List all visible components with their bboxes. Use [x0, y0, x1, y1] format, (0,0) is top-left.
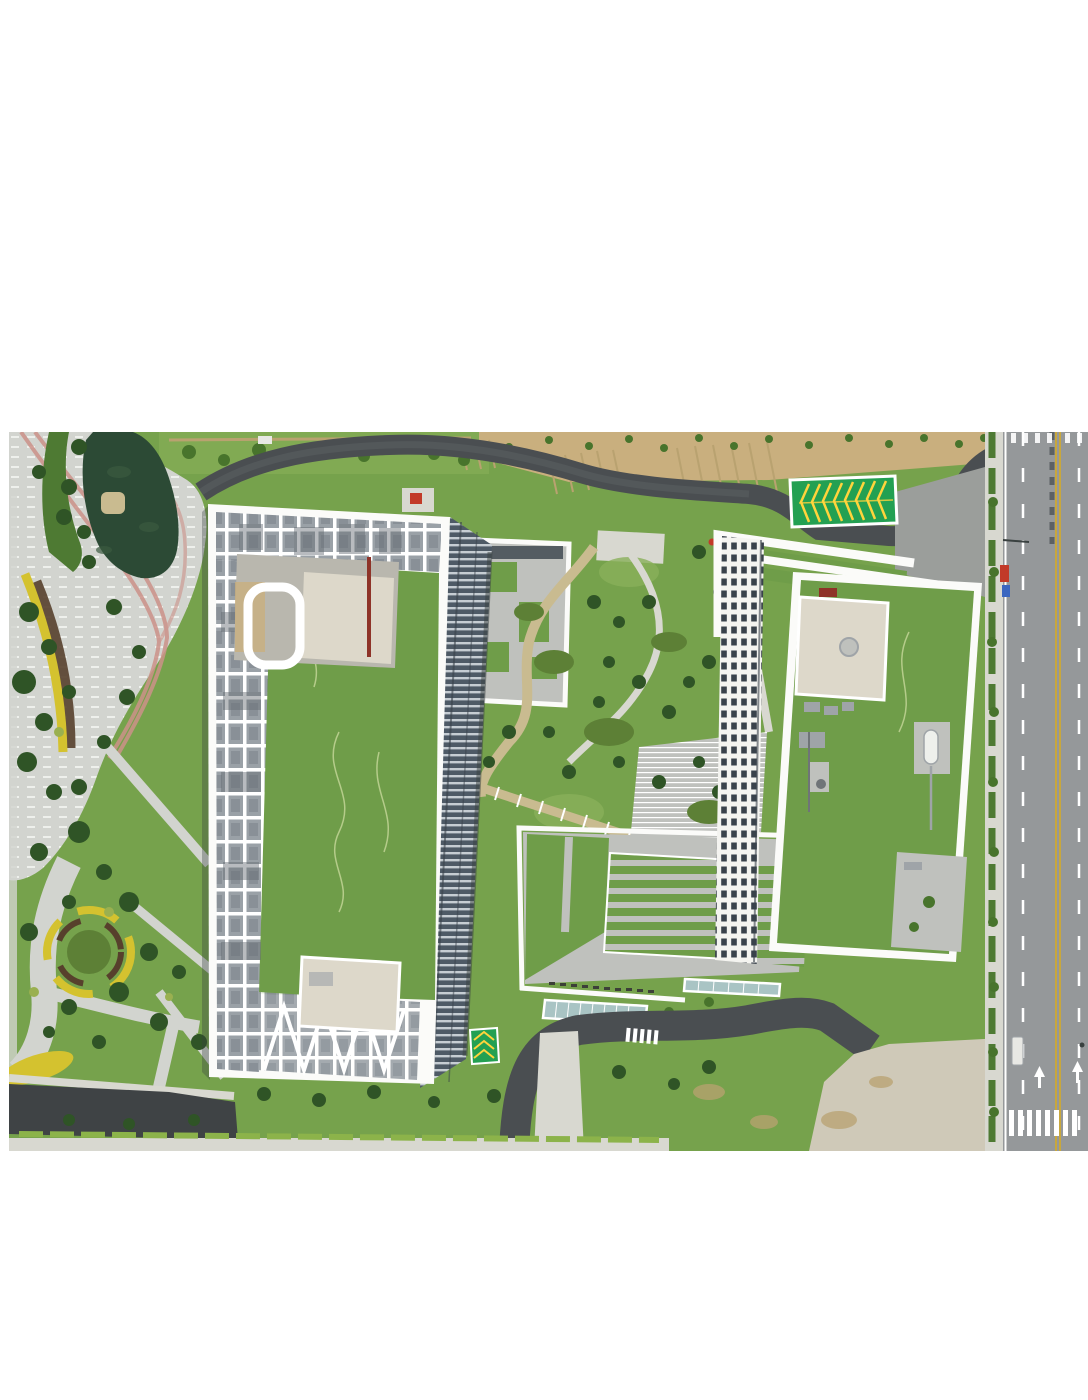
right-roof-red-box — [819, 588, 837, 597]
water-tank — [924, 730, 938, 764]
roof-grille — [904, 862, 922, 870]
green-unit — [923, 896, 935, 908]
chevron-pad — [790, 476, 897, 527]
left-tower — [202, 504, 492, 1088]
pedestrian-path — [534, 1031, 584, 1151]
penthouse-south-unit — [309, 972, 333, 986]
red-truck — [1000, 565, 1009, 582]
red-machine — [410, 493, 422, 504]
blue-car — [1002, 585, 1010, 597]
chevron-ramp-small — [470, 1028, 499, 1064]
page — [0, 0, 1088, 1400]
main-road — [985, 432, 1088, 1151]
penthouse-south — [299, 957, 400, 1032]
right-building — [715, 535, 982, 964]
road-sidewalk — [985, 432, 1003, 1151]
pond-island — [101, 492, 125, 514]
roof-red-rail — [367, 557, 371, 657]
aerial-photo-rendering — [9, 432, 1088, 1151]
roof-fan — [840, 638, 858, 656]
podium-lawn-path — [565, 837, 569, 932]
bush — [704, 997, 714, 1007]
white-car — [258, 436, 272, 444]
aerial-photo — [9, 432, 1088, 1151]
shrub-mound — [67, 930, 111, 974]
penthouse-north-pad — [301, 572, 394, 664]
white-van — [1012, 1037, 1023, 1065]
pedestrian-dot — [1080, 1043, 1085, 1048]
green-unit — [909, 922, 919, 932]
